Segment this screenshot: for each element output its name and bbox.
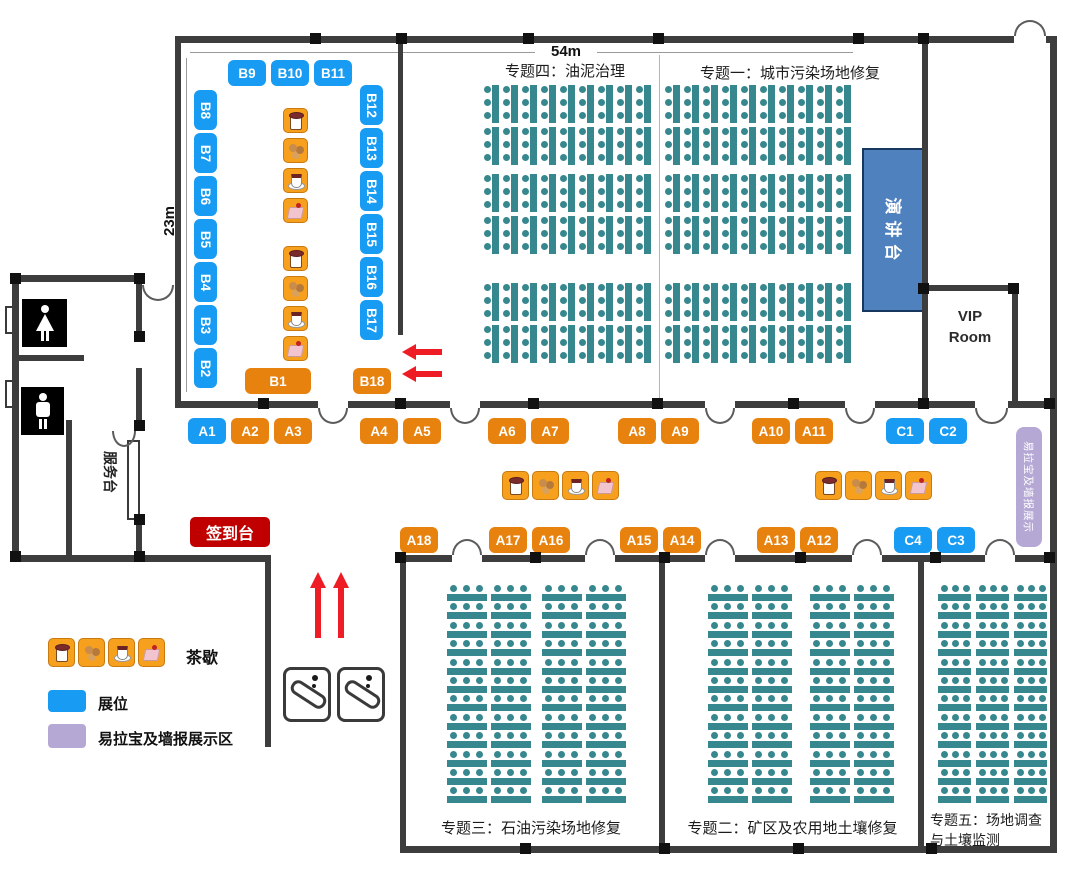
wall-pillar bbox=[918, 283, 929, 294]
seat-table-unit bbox=[491, 622, 535, 639]
booth-label: A7 bbox=[541, 424, 558, 439]
seat-table-unit bbox=[635, 325, 654, 365]
cake-icon-tile bbox=[905, 471, 932, 500]
booth-label: B7 bbox=[198, 144, 213, 161]
seat-table-unit bbox=[664, 85, 683, 125]
wall bbox=[175, 36, 1014, 43]
wall-pillar bbox=[930, 552, 941, 563]
booth-label: A4 bbox=[370, 424, 387, 439]
booth-b3: B3 bbox=[194, 305, 217, 345]
seat-table-unit bbox=[559, 216, 578, 256]
booth-row2-group4: A13A12 bbox=[757, 527, 838, 553]
seat-table-unit bbox=[740, 85, 759, 125]
cake-icon-tile bbox=[138, 638, 165, 667]
wall-pillar bbox=[1044, 552, 1055, 563]
booth-a8: A8 bbox=[618, 418, 656, 444]
seat-table-unit bbox=[854, 714, 898, 731]
seat-table-unit bbox=[502, 283, 521, 323]
hall-seating-left-band1 bbox=[483, 85, 654, 169]
seat-table-unit bbox=[759, 127, 778, 167]
seat-table-unit bbox=[483, 174, 502, 214]
booth-a15: A15 bbox=[620, 527, 658, 553]
seat-table-unit bbox=[447, 787, 491, 804]
door-arc bbox=[985, 539, 1000, 555]
booth-b7: B7 bbox=[194, 133, 217, 173]
booth-label: A2 bbox=[241, 424, 258, 439]
booth-b8: B8 bbox=[194, 90, 217, 130]
booth-label: B3 bbox=[198, 316, 213, 333]
seat-table-unit bbox=[542, 622, 586, 639]
wall-pillar bbox=[134, 273, 145, 284]
seat-table-unit bbox=[702, 174, 721, 214]
tea-break-station-corridor-left bbox=[502, 471, 619, 500]
wall-pillar bbox=[652, 398, 663, 409]
seat-table-unit bbox=[542, 787, 586, 804]
seat-table-unit bbox=[447, 585, 491, 602]
seat-table-unit bbox=[752, 751, 796, 768]
seat-table-unit bbox=[483, 85, 502, 125]
seat-table-unit bbox=[578, 325, 597, 365]
seat-table-unit bbox=[491, 659, 535, 676]
seat-table-unit bbox=[491, 695, 535, 712]
booth-b5: B5 bbox=[194, 219, 217, 259]
hall-seating-left-band2 bbox=[483, 174, 654, 258]
door-arc bbox=[705, 539, 720, 555]
seat-table-unit bbox=[542, 714, 586, 731]
zone-title-topic2: 专题二：矿区及农用地土壤修复 bbox=[665, 817, 920, 838]
seat-table-unit bbox=[635, 127, 654, 167]
seat-table-unit bbox=[542, 585, 586, 602]
door-arc bbox=[142, 285, 158, 301]
booth-a3: A3 bbox=[274, 418, 312, 444]
booth-label: B16 bbox=[364, 265, 379, 290]
seat-table-unit bbox=[447, 659, 491, 676]
seat-table-unit bbox=[708, 622, 752, 639]
coffee-icon bbox=[287, 172, 305, 190]
mug-icon-tile bbox=[283, 246, 308, 271]
seat-table-unit bbox=[447, 751, 491, 768]
seat-table-unit bbox=[559, 85, 578, 125]
wall bbox=[12, 275, 142, 282]
booth-a12: A12 bbox=[800, 527, 838, 553]
seat-table-unit bbox=[797, 85, 816, 125]
seat-table-unit bbox=[616, 85, 635, 125]
door-arc bbox=[1030, 20, 1046, 36]
seat-table-unit bbox=[721, 127, 740, 167]
wall-pillar bbox=[918, 33, 929, 44]
seat-table-unit bbox=[586, 659, 630, 676]
seat-table-unit bbox=[586, 585, 630, 602]
booth-label: B4 bbox=[198, 273, 213, 290]
seat-table-unit bbox=[752, 732, 796, 749]
room3-seating-group2 bbox=[542, 585, 630, 806]
wall-pillar bbox=[926, 843, 937, 854]
door-arc bbox=[860, 408, 875, 424]
wall-pillar bbox=[1008, 283, 1019, 294]
seat-table-unit bbox=[740, 283, 759, 323]
booth-a14: A14 bbox=[663, 527, 701, 553]
male-icon bbox=[32, 393, 54, 429]
booth-label: B11 bbox=[321, 66, 345, 81]
seat-table-unit bbox=[740, 127, 759, 167]
booth-a11: A11 bbox=[795, 418, 833, 444]
seat-table-unit bbox=[854, 677, 898, 694]
cake-icon-tile bbox=[592, 471, 619, 500]
seat-table-unit bbox=[740, 216, 759, 256]
seat-table-unit bbox=[586, 751, 630, 768]
wall-pillar bbox=[659, 843, 670, 854]
seat-table-unit bbox=[708, 787, 752, 804]
seat-table-unit bbox=[810, 622, 854, 639]
up-arrow bbox=[310, 572, 326, 638]
puffs-icon bbox=[83, 644, 101, 662]
seat-table-unit bbox=[810, 751, 854, 768]
wall bbox=[175, 401, 318, 408]
booth-label: B2 bbox=[198, 359, 213, 376]
booth-label: B6 bbox=[198, 187, 213, 204]
puffs-icon-tile bbox=[845, 471, 872, 500]
seat-table-unit bbox=[491, 640, 535, 657]
seat-table-unit bbox=[683, 325, 702, 365]
wall-pillar bbox=[528, 398, 539, 409]
booth-label: A5 bbox=[413, 424, 430, 439]
seat-table-unit bbox=[854, 622, 898, 639]
seat-table-unit bbox=[835, 127, 854, 167]
seat-table-unit bbox=[810, 787, 854, 804]
seat-table-unit bbox=[635, 283, 654, 323]
seat-table-unit bbox=[597, 283, 616, 323]
seat-table-unit bbox=[559, 127, 578, 167]
seat-table-unit bbox=[491, 677, 535, 694]
seat-table-unit bbox=[810, 603, 854, 620]
seat-table-unit bbox=[616, 174, 635, 214]
booth-a10: A10 bbox=[752, 418, 790, 444]
vip-line1: VIP bbox=[928, 306, 1012, 327]
booth-row1-group1: A1A2A3 bbox=[188, 418, 312, 444]
seat-table-unit bbox=[740, 174, 759, 214]
seat-table-unit bbox=[854, 751, 898, 768]
door-arc bbox=[585, 539, 600, 555]
booth-a13: A13 bbox=[757, 527, 795, 553]
seat-table-unit bbox=[708, 751, 752, 768]
seat-table-unit bbox=[752, 677, 796, 694]
door-arc bbox=[158, 285, 174, 301]
booth-label: A11 bbox=[802, 424, 826, 439]
booth-label: B13 bbox=[364, 136, 379, 161]
wall-pillar bbox=[918, 398, 929, 409]
wall bbox=[66, 420, 72, 562]
seat-table-unit bbox=[502, 127, 521, 167]
booth-group-b-left: B8B7B6B5B4B3B2 bbox=[194, 90, 217, 388]
booth-b13: B13 bbox=[360, 128, 383, 168]
seat-table-unit bbox=[721, 174, 740, 214]
booth-row1-group5: A10A11 bbox=[752, 418, 833, 444]
seat-table-unit bbox=[578, 216, 597, 256]
seat-table-unit bbox=[635, 174, 654, 214]
wall bbox=[400, 555, 452, 562]
seat-table-unit bbox=[664, 325, 683, 365]
door-arc bbox=[720, 408, 735, 424]
seat-table-unit bbox=[540, 216, 559, 256]
seat-table-unit bbox=[752, 603, 796, 620]
seat-table-unit bbox=[586, 603, 630, 620]
seat-table-unit bbox=[616, 283, 635, 323]
seat-table-unit bbox=[835, 216, 854, 256]
booth-group-b-top: B9B10B11 bbox=[228, 60, 352, 86]
seat-table-unit bbox=[816, 174, 835, 214]
door-arc bbox=[1014, 20, 1030, 36]
wall bbox=[1012, 285, 1018, 407]
seat-table-unit bbox=[447, 714, 491, 731]
seat-table-unit bbox=[521, 174, 540, 214]
door-arc bbox=[450, 408, 465, 424]
seat-table-unit bbox=[752, 640, 796, 657]
door-arc bbox=[1000, 539, 1015, 555]
seat-table-unit bbox=[778, 85, 797, 125]
wall-pillar bbox=[853, 33, 864, 44]
wall bbox=[265, 555, 271, 747]
seat-table-unit bbox=[797, 127, 816, 167]
seat-table-unit bbox=[797, 283, 816, 323]
coffee-icon bbox=[567, 477, 585, 495]
escalator-icon bbox=[283, 667, 331, 722]
hall-seating-right-band1 bbox=[664, 85, 854, 169]
puffs-icon-tile bbox=[78, 638, 105, 667]
wall bbox=[918, 555, 924, 846]
seat-table-unit bbox=[491, 603, 535, 620]
booth-c3: C3 bbox=[937, 527, 975, 553]
wall-pillar bbox=[395, 398, 406, 409]
wall bbox=[659, 555, 665, 846]
wall-pillar bbox=[10, 273, 21, 284]
seat-table-unit bbox=[854, 695, 898, 712]
booth-a5: A5 bbox=[403, 418, 441, 444]
seat-table-unit bbox=[664, 174, 683, 214]
hall-seating-left-band3 bbox=[483, 283, 654, 367]
legend-tea-label: 茶歇 bbox=[186, 644, 218, 668]
seat-table-unit bbox=[483, 127, 502, 167]
booth-label: A12 bbox=[807, 533, 832, 548]
zone-title-topic5: 专题五：场地调查 与土壤监测 bbox=[930, 810, 1056, 850]
seat-table-unit bbox=[542, 659, 586, 676]
seat-table-unit bbox=[854, 603, 898, 620]
banner-display-strip-label: 易拉宝及墙报展示 bbox=[1022, 429, 1036, 545]
booth-b16: B16 bbox=[360, 257, 383, 297]
seat-table-unit bbox=[542, 751, 586, 768]
wall bbox=[480, 401, 705, 408]
seat-table-unit bbox=[683, 85, 702, 125]
seat-table-unit bbox=[542, 603, 586, 620]
seat-table-unit bbox=[702, 127, 721, 167]
seat-table-unit bbox=[810, 640, 854, 657]
seat-table-unit bbox=[702, 85, 721, 125]
seat-table-unit bbox=[616, 216, 635, 256]
seat-table-unit bbox=[521, 85, 540, 125]
booth-a7: A7 bbox=[531, 418, 569, 444]
cake-icon bbox=[597, 477, 615, 495]
seat-table-unit bbox=[854, 659, 898, 676]
seat-table-unit bbox=[816, 216, 835, 256]
room3-seating-group1 bbox=[447, 585, 535, 806]
wall bbox=[398, 36, 403, 335]
seat-table-unit bbox=[447, 732, 491, 749]
seat-table-unit bbox=[521, 325, 540, 365]
wall-pillar bbox=[793, 843, 804, 854]
booth-label: C3 bbox=[947, 533, 964, 548]
booth-label: B15 bbox=[364, 222, 379, 247]
seat-table-unit bbox=[708, 603, 752, 620]
seat-table-unit bbox=[854, 787, 898, 804]
wall-pillar bbox=[310, 33, 321, 44]
wall-pillar bbox=[395, 552, 406, 563]
seat-table-unit bbox=[759, 174, 778, 214]
booth-label: B1 bbox=[269, 374, 286, 389]
zone-title-topic5-line1: 专题五：场地调查 bbox=[930, 810, 1056, 830]
door-arc bbox=[975, 408, 992, 424]
seat-table-unit bbox=[586, 732, 630, 749]
booth-label: A18 bbox=[407, 533, 432, 548]
seat-table-unit bbox=[810, 677, 854, 694]
seat-table-unit bbox=[708, 640, 752, 657]
seat-table-unit bbox=[483, 283, 502, 323]
legend-banner-label: 易拉宝及墙报展示区 bbox=[98, 728, 233, 749]
floor-plan: 54m 23m 专题四：油泥治理 专题一：城市污染场地修复 专题三：石油污染场地… bbox=[0, 0, 1080, 875]
seat-table-unit bbox=[854, 640, 898, 657]
mug-icon bbox=[820, 477, 838, 495]
zone-title-topic3: 专题三：石油污染场地修复 bbox=[400, 817, 662, 838]
seat-table-unit bbox=[721, 325, 740, 365]
wall-pillar bbox=[134, 514, 145, 525]
wall-pillar bbox=[258, 398, 269, 409]
dimension-width-label: 54m bbox=[535, 42, 597, 62]
coffee-icon-tile bbox=[108, 638, 135, 667]
wall bbox=[400, 846, 1057, 853]
seat-table-unit bbox=[778, 325, 797, 365]
cake-icon bbox=[287, 340, 305, 358]
booth-label: A17 bbox=[496, 533, 521, 548]
puffs-icon bbox=[850, 477, 868, 495]
mug-icon-tile bbox=[502, 471, 529, 500]
wall-pillar bbox=[520, 843, 531, 854]
booth-b2: B2 bbox=[194, 348, 217, 388]
seat-table-unit bbox=[721, 85, 740, 125]
door-arc bbox=[318, 408, 333, 424]
booth-b4: B4 bbox=[194, 262, 217, 302]
seat-table-unit bbox=[797, 325, 816, 365]
seat-table-unit bbox=[447, 769, 491, 786]
wall bbox=[400, 555, 406, 853]
wall bbox=[12, 355, 84, 361]
booth-label: B17 bbox=[364, 308, 379, 333]
hall-seating-right-band3 bbox=[664, 283, 854, 367]
tea-break-station-b-area-2 bbox=[283, 246, 308, 361]
booth-label: B10 bbox=[278, 66, 303, 81]
seat-table-unit bbox=[542, 769, 586, 786]
mug-icon-tile bbox=[48, 638, 75, 667]
podium-label: 演讲台 bbox=[883, 157, 907, 307]
wall bbox=[12, 275, 19, 562]
seat-table-unit bbox=[683, 174, 702, 214]
booth-label: B14 bbox=[364, 179, 379, 204]
legend-booth-label: 展位 bbox=[98, 693, 128, 714]
seat-table-unit bbox=[708, 585, 752, 602]
mug-icon bbox=[287, 112, 305, 130]
seat-table-unit bbox=[586, 695, 630, 712]
booth-b14: B14 bbox=[360, 171, 383, 211]
wall-pillar bbox=[659, 552, 670, 563]
seat-table-unit bbox=[759, 283, 778, 323]
seat-table-unit bbox=[540, 85, 559, 125]
coffee-icon-tile bbox=[562, 471, 589, 500]
booth-b17: B17 bbox=[360, 300, 383, 340]
seat-table-unit bbox=[483, 216, 502, 256]
seat-table-unit bbox=[854, 732, 898, 749]
seat-table-unit bbox=[778, 127, 797, 167]
wall-pillar bbox=[134, 420, 145, 431]
seat-table-unit bbox=[540, 283, 559, 323]
booth-group-b-bottom: B1B18 bbox=[245, 368, 391, 394]
cake-icon bbox=[143, 644, 161, 662]
door-arc bbox=[845, 408, 860, 424]
seat-table-unit bbox=[542, 640, 586, 657]
wall-pillar bbox=[788, 398, 799, 409]
seat-table-unit bbox=[635, 85, 654, 125]
seat-table-unit bbox=[542, 732, 586, 749]
booth-label: A3 bbox=[284, 424, 301, 439]
seat-table-unit bbox=[664, 283, 683, 323]
seat-table-unit bbox=[683, 216, 702, 256]
booth-label: B9 bbox=[238, 66, 255, 81]
seat-table-unit bbox=[502, 216, 521, 256]
seat-table-unit bbox=[759, 216, 778, 256]
booth-c4: C4 bbox=[894, 527, 932, 553]
seat-table-unit bbox=[816, 85, 835, 125]
seat-table-unit bbox=[702, 283, 721, 323]
seat-table-unit bbox=[597, 325, 616, 365]
booth-label: A16 bbox=[539, 533, 564, 548]
booth-label: A6 bbox=[498, 424, 515, 439]
wall-pillar bbox=[795, 552, 806, 563]
seat-table-unit bbox=[721, 283, 740, 323]
booth-label: C2 bbox=[939, 424, 956, 439]
cake-icon bbox=[287, 202, 305, 220]
booth-b9: B9 bbox=[228, 60, 266, 86]
room5-seating-group bbox=[938, 585, 1052, 806]
seat-table-unit bbox=[810, 695, 854, 712]
seat-table-unit bbox=[483, 325, 502, 365]
seat-table-unit bbox=[559, 174, 578, 214]
booth-row1-group2: A4A5 bbox=[360, 418, 441, 444]
booth-a17: A17 bbox=[489, 527, 527, 553]
coffee-icon-tile bbox=[875, 471, 902, 500]
seat-table-unit bbox=[559, 325, 578, 365]
puffs-icon-tile bbox=[283, 276, 308, 301]
booth-label: A15 bbox=[627, 533, 652, 548]
seat-table-unit bbox=[708, 677, 752, 694]
wall-pillar bbox=[523, 33, 534, 44]
booth-label: A10 bbox=[759, 424, 784, 439]
booth-row2-group2: A17A16 bbox=[489, 527, 570, 553]
seat-table-unit bbox=[708, 659, 752, 676]
wall bbox=[922, 285, 1018, 291]
seat-table-unit bbox=[447, 603, 491, 620]
booth-row1-group6: C1C2 bbox=[886, 418, 967, 444]
up-arrow bbox=[333, 572, 349, 638]
booth-b15: B15 bbox=[360, 214, 383, 254]
wall bbox=[175, 36, 181, 408]
seat-table-unit bbox=[816, 325, 835, 365]
seat-table-unit bbox=[816, 283, 835, 323]
